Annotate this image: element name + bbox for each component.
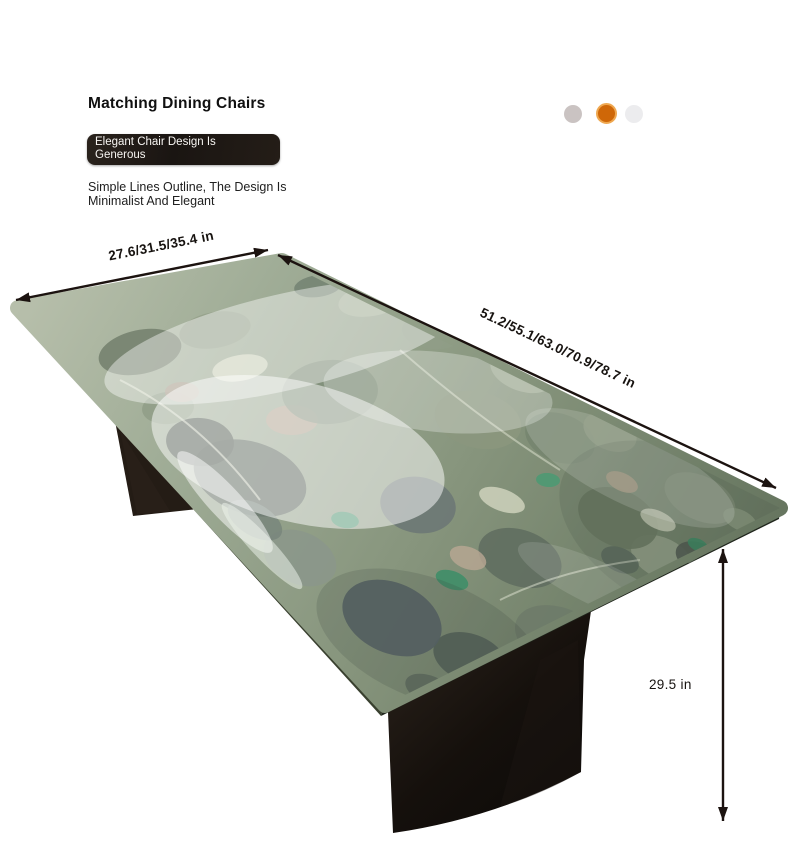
color-swatch-warm-gray[interactable] xyxy=(564,105,582,123)
height-dimension-arrow: 29.5 in xyxy=(649,549,723,821)
feature-badge: Elegant Chair Design Is Generous xyxy=(87,134,280,165)
product-card: 27.6/31.5/35.4 in 51.2/55.1/63.0/70.9/78… xyxy=(0,0,790,848)
feature-badge-line1: Elegant Chair Design Is xyxy=(95,136,272,149)
feature-badge-line2: Generous xyxy=(95,149,272,162)
height-dimension-label: 29.5 in xyxy=(649,677,692,692)
color-swatch-light-gray[interactable] xyxy=(625,105,643,123)
product-photo: 27.6/31.5/35.4 in 51.2/55.1/63.0/70.9/78… xyxy=(0,0,790,848)
width-dimension-label: 27.6/31.5/35.4 in xyxy=(107,228,215,264)
color-swatch-orange[interactable] xyxy=(596,103,617,124)
product-title: Matching Dining Chairs xyxy=(88,95,266,113)
product-description: Simple Lines Outline, The Design Is Mini… xyxy=(88,180,286,208)
product-description-line2: Minimalist And Elegant xyxy=(88,194,286,208)
product-description-line1: Simple Lines Outline, The Design Is xyxy=(88,180,286,194)
